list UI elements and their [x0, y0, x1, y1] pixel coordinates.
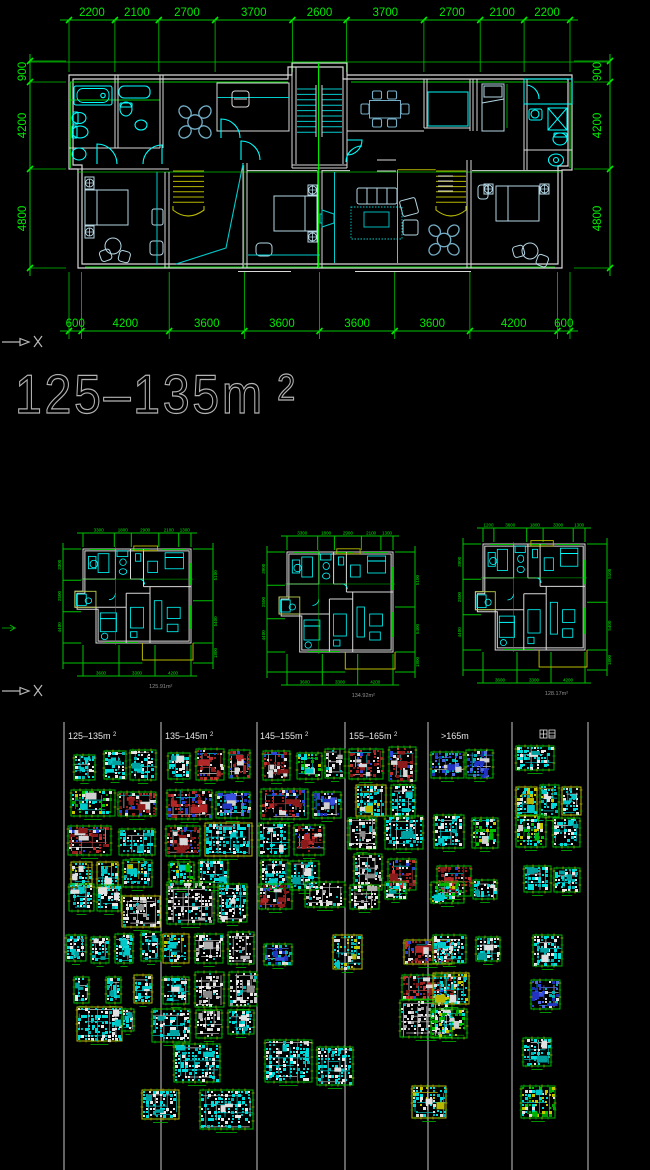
svg-text:600: 600 [554, 318, 573, 330]
svg-text:600: 600 [66, 318, 85, 330]
svg-text:1300: 1300 [574, 523, 585, 528]
svg-text:4400: 4400 [261, 630, 266, 641]
svg-text:5400: 5400 [415, 623, 420, 634]
svg-text:1800: 1800 [530, 523, 541, 528]
svg-text:2900: 2900 [343, 531, 354, 536]
svg-text:4200: 4200 [17, 113, 29, 139]
svg-text:3600: 3600 [194, 318, 220, 330]
svg-text:4400: 4400 [457, 627, 462, 638]
svg-text:3900: 3900 [261, 563, 266, 574]
svg-text:1800: 1800 [118, 528, 129, 533]
svg-text:3700: 3700 [241, 7, 267, 19]
svg-text:4200: 4200 [563, 678, 574, 683]
svg-text:3600: 3600 [505, 523, 516, 528]
svg-text:2500: 2500 [261, 596, 266, 607]
svg-text:>165m: >165m [441, 731, 469, 741]
svg-text:3600: 3600 [269, 318, 295, 330]
svg-text:2100: 2100 [489, 7, 515, 19]
svg-text:2900: 2900 [140, 528, 151, 533]
svg-text:5100: 5100 [213, 570, 218, 581]
svg-text:4400: 4400 [57, 622, 62, 633]
svg-text:3600: 3600 [495, 678, 506, 683]
svg-text:4200: 4200 [592, 113, 604, 139]
svg-text:2100: 2100 [164, 528, 175, 533]
svg-text:4200: 4200 [168, 671, 179, 676]
svg-text:135–145m 2: 135–145m 2 [165, 731, 214, 741]
svg-text:3600: 3600 [420, 318, 446, 330]
svg-text:145–155m 2: 145–155m 2 [260, 731, 309, 741]
svg-text:2: 2 [277, 367, 295, 408]
svg-text:134.92m²: 134.92m² [352, 693, 375, 699]
svg-text:2200: 2200 [79, 7, 105, 19]
svg-text:1800: 1800 [321, 531, 332, 536]
svg-text:5100: 5100 [607, 568, 612, 579]
svg-text:3300: 3300 [553, 523, 564, 528]
svg-text:3600: 3600 [300, 680, 311, 685]
svg-text:2100: 2100 [366, 531, 377, 536]
svg-text:3600: 3600 [96, 671, 107, 676]
svg-text:900: 900 [17, 62, 29, 81]
svg-text:2500: 2500 [57, 590, 62, 601]
svg-text:1800: 1800 [415, 656, 420, 667]
svg-text:1300: 1300 [382, 531, 393, 536]
svg-text:4200: 4200 [113, 318, 139, 330]
svg-text:3300: 3300 [335, 680, 346, 685]
svg-text:900: 900 [592, 62, 604, 81]
svg-text:128.17m²: 128.17m² [545, 691, 568, 697]
svg-text:2600: 2600 [307, 7, 333, 19]
svg-text:2500: 2500 [457, 591, 462, 602]
svg-text:125.91m²: 125.91m² [149, 684, 172, 690]
svg-text:4800: 4800 [592, 206, 604, 232]
svg-text:1300: 1300 [180, 528, 191, 533]
svg-text:4200: 4200 [370, 680, 381, 685]
svg-text:5400: 5400 [213, 616, 218, 627]
svg-text:155–165m 2: 155–165m 2 [349, 731, 398, 741]
svg-text:2200: 2200 [534, 7, 560, 19]
svg-text:4800: 4800 [17, 206, 29, 232]
svg-text:3900: 3900 [457, 556, 462, 567]
svg-text:5100: 5100 [415, 574, 420, 585]
svg-text:1200: 1200 [483, 523, 494, 528]
svg-text:3700: 3700 [372, 7, 398, 19]
svg-text:1800: 1800 [213, 647, 218, 658]
svg-text:1800: 1800 [607, 654, 612, 665]
svg-text:2700: 2700 [174, 7, 200, 19]
svg-text:2100: 2100 [124, 7, 150, 19]
svg-text:3300: 3300 [132, 671, 143, 676]
svg-text:5400: 5400 [607, 620, 612, 631]
svg-text:3300: 3300 [529, 678, 540, 683]
svg-text:4200: 4200 [501, 318, 527, 330]
svg-text:3300: 3300 [94, 528, 105, 533]
svg-text:3300: 3300 [297, 531, 308, 536]
svg-text:125–135m: 125–135m [15, 363, 265, 425]
svg-text:3600: 3600 [344, 318, 370, 330]
svg-text:3300: 3300 [57, 559, 62, 570]
svg-text:125–135m 2: 125–135m 2 [68, 731, 117, 741]
svg-text:2700: 2700 [439, 7, 465, 19]
